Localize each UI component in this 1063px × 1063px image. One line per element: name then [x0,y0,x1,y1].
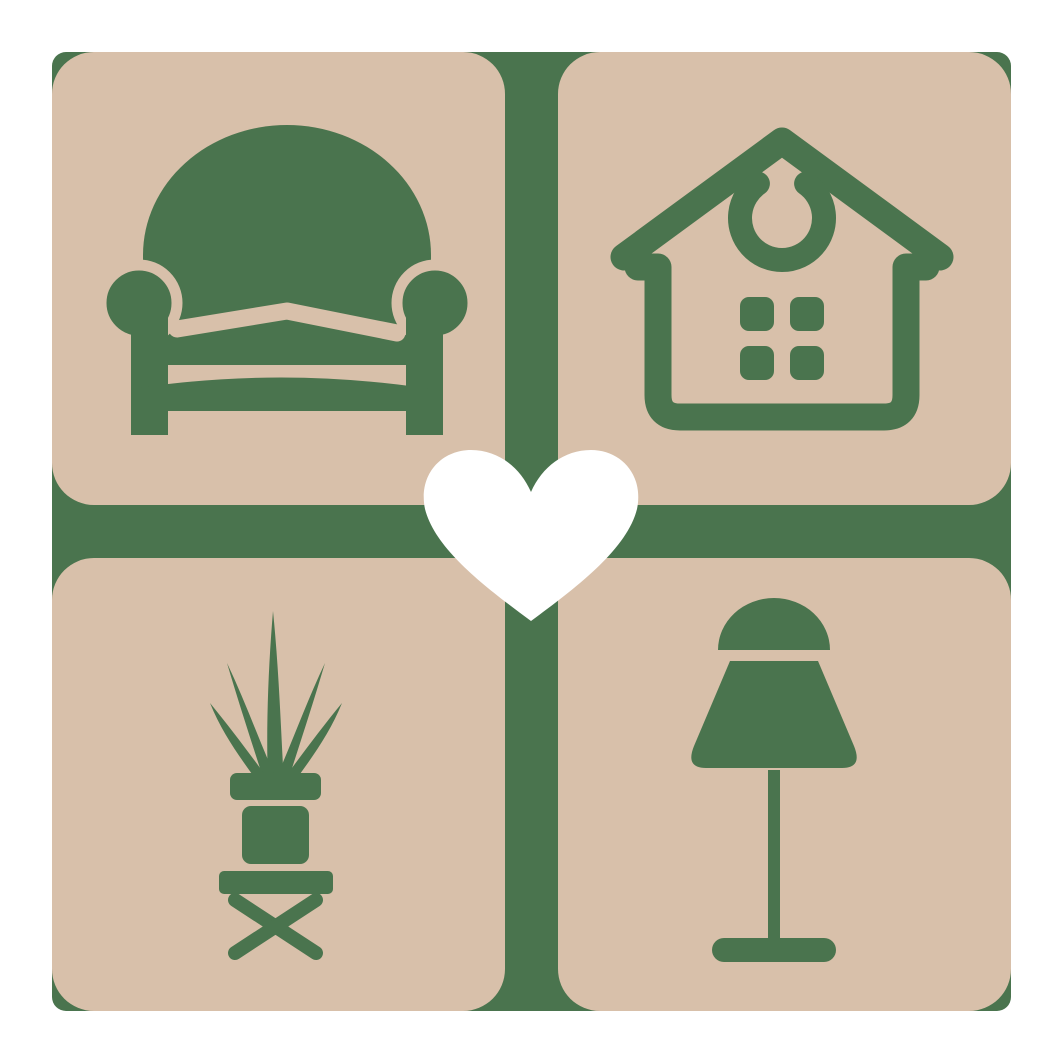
heart-icon [421,445,641,625]
logo-canvas [0,0,1063,1063]
potted-plant-icon [210,611,350,961]
house-icon [610,127,960,447]
table-lamp-icon [684,598,874,963]
armchair-icon [101,125,473,437]
tile-house [558,52,1011,505]
tile-armchair [52,52,505,505]
tile-table-lamp [558,558,1011,1011]
tile-potted-plant [52,558,505,1011]
